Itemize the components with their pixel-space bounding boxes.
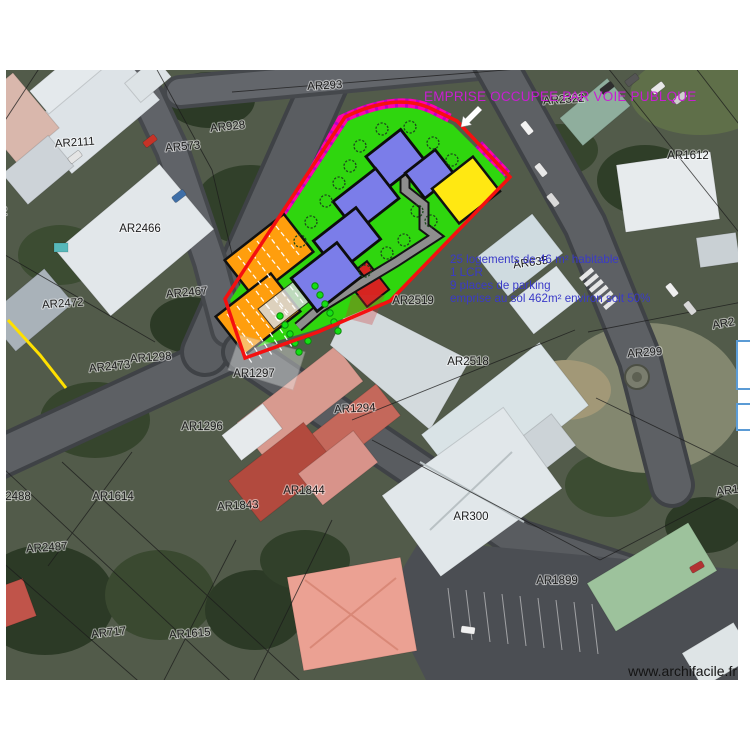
parcel-label-ar2466: AR2466 [119,223,161,235]
public-way-title: EMPRISE OCCUPEE PAR VOIE PUBLQUE [424,89,696,104]
parcel-label-ar300: AR300 [453,511,488,523]
annotation-line-2: 1 LCR [450,266,483,279]
parcel-label-ar1294: AR1294 [334,402,377,416]
annotation-line-1: 25 logements de 46 m² habitable [450,253,619,266]
parcel-label-ar1899: AR1899 [536,575,578,587]
parcel-label-ar1612: AR1612 [667,150,709,162]
parcel-label-ar299: AR299 [627,346,663,360]
parcel-label-ar1297: AR1297 [233,368,275,380]
parcel-label-2488: 2488 [5,491,31,503]
map-canvas[interactable]: AR293AR2322AR928AR2111AR573AR1612AR2466A… [0,46,750,700]
parcel-label-ar293: AR293 [307,79,343,93]
map-control-button-top[interactable] [737,341,750,389]
annotation-line-4: emprise au sol 462m² environ soit 50% [450,292,650,305]
parcel-label-ar1843: AR1843 [217,499,259,513]
watermark-text: www.archifacile.fr [627,663,737,679]
parcel-label-ar1844: AR1844 [283,485,325,497]
parcel-label-ar2519: AR2519 [392,295,434,307]
parcel-label-ar2518: AR2518 [447,356,489,368]
site-plan-map-page: AR293AR2322AR928AR2111AR573AR1612AR2466A… [0,0,750,750]
annotation-line-3: 9 places de parking [450,279,551,292]
parcel-label-ar1614: AR1614 [92,491,134,503]
parcel-label-ar1296: AR1296 [181,421,223,433]
map-controls [737,341,750,430]
map-control-button-bottom[interactable] [737,404,750,430]
site-plan-map: AR293AR2322AR928AR2111AR573AR1612AR2466A… [0,0,750,750]
roundabout [625,365,649,389]
